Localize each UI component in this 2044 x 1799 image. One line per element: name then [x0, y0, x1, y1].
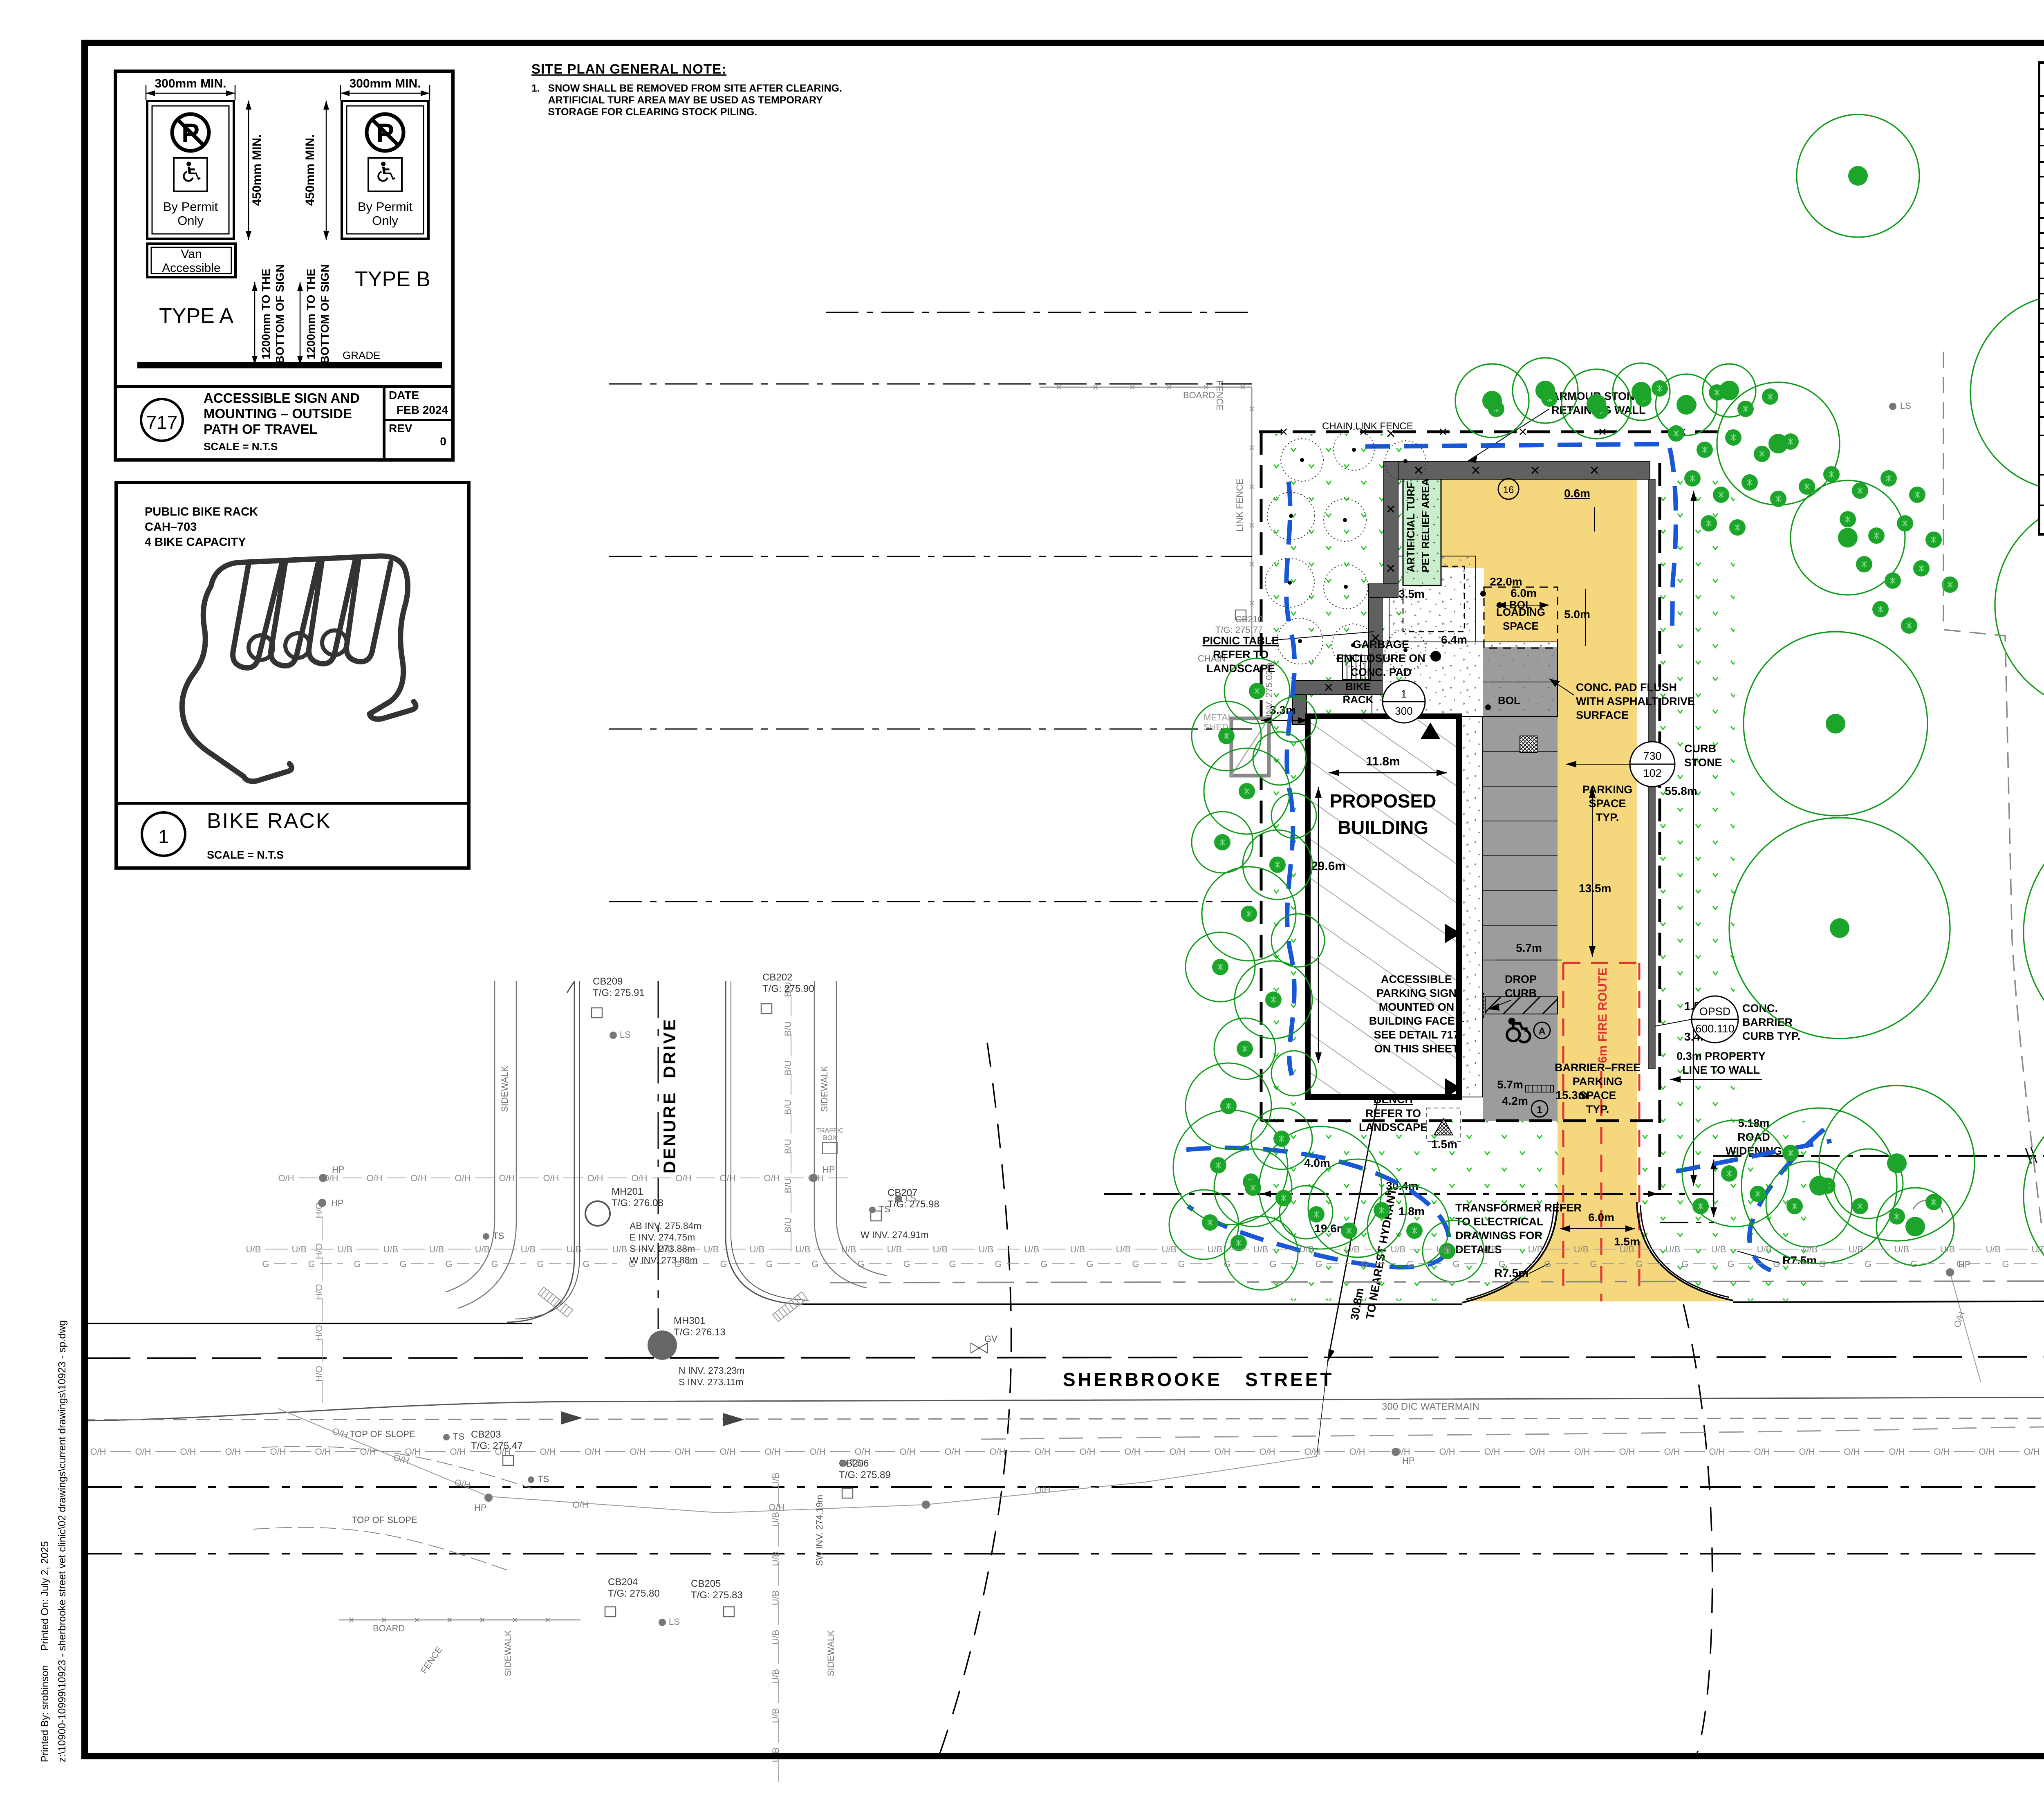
svg-text:1200mm TO THE: 1200mm TO THE	[305, 269, 317, 359]
svg-text:TYPE A: TYPE A	[159, 304, 233, 328]
svg-text:450mm MIN.: 450mm MIN.	[250, 134, 264, 206]
svg-text:300mm MIN.: 300mm MIN.	[155, 77, 226, 90]
svg-text:TYPE B: TYPE B	[355, 267, 430, 291]
svg-text:BOTTOM OF SIGN: BOTTOM OF SIGN	[273, 264, 286, 364]
svg-text:BOTTOM OF SIGN: BOTTOM OF SIGN	[318, 264, 331, 364]
svg-text:1200mm TO THE: 1200mm TO THE	[260, 269, 272, 359]
svg-text:300mm MIN.: 300mm MIN.	[349, 77, 421, 90]
svg-text:GRADE: GRADE	[343, 349, 380, 361]
svg-text:450mm MIN.: 450mm MIN.	[303, 134, 317, 206]
